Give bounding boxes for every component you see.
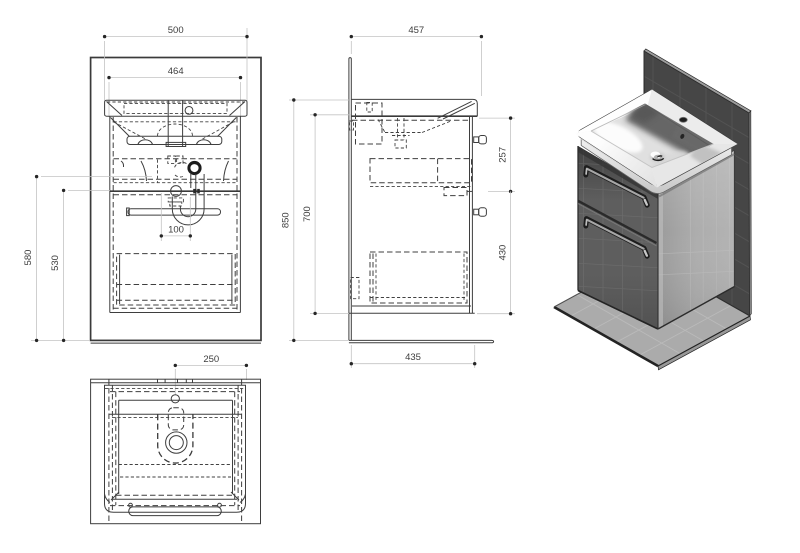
svg-text:100: 100 — [168, 224, 184, 235]
svg-text:457: 457 — [408, 25, 424, 36]
svg-text:530: 530 — [50, 255, 61, 271]
svg-text:250: 250 — [203, 354, 219, 365]
svg-text:464: 464 — [168, 66, 184, 77]
svg-text:700: 700 — [302, 206, 313, 222]
svg-text:430: 430 — [497, 245, 508, 261]
svg-text:850: 850 — [281, 212, 292, 228]
svg-text:580: 580 — [23, 250, 34, 266]
svg-text:257: 257 — [497, 147, 508, 163]
svg-text:500: 500 — [168, 25, 184, 36]
svg-text:435: 435 — [405, 352, 421, 363]
